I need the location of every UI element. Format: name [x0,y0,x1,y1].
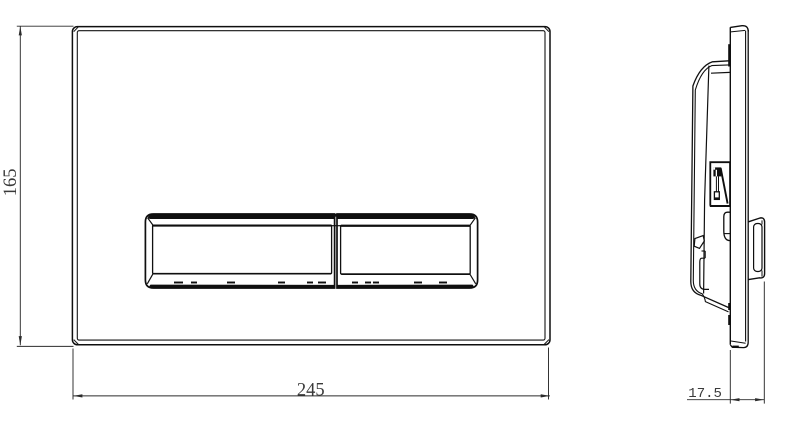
svg-text:245: 245 [297,380,325,400]
svg-text:17.5: 17.5 [688,386,722,402]
svg-text:165: 165 [1,169,21,197]
